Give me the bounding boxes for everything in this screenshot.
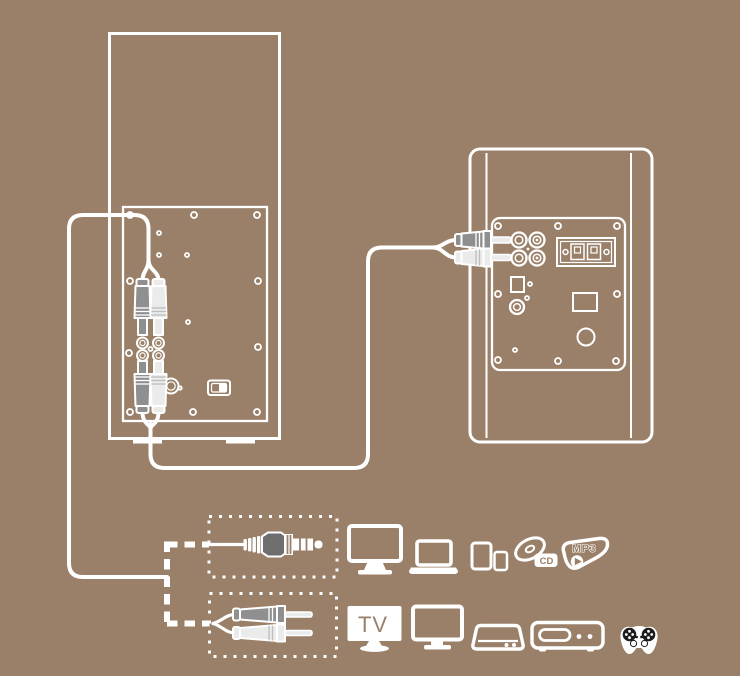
label-plate	[573, 293, 597, 311]
dvd-player-icon	[532, 623, 603, 652]
right-speaker-rca-jacks	[512, 233, 545, 266]
rca-plug-dark	[233, 606, 312, 623]
rca-plug-light	[233, 625, 312, 642]
cd-player-icon: CD	[512, 533, 558, 567]
right-speaker-ports	[510, 277, 597, 346]
mp3-player-icon: MP3	[563, 538, 607, 568]
rca-plug-dark	[455, 231, 511, 249]
aux-adapter-box	[209, 517, 337, 578]
tv-icon: TV	[348, 606, 402, 652]
right-speaker	[470, 149, 652, 442]
game-controller-icon	[620, 626, 657, 654]
mp3-label: MP3	[572, 543, 596, 555]
port-square	[511, 277, 524, 292]
rca-plug-light	[151, 361, 167, 413]
adapter-branch-lines	[167, 542, 210, 624]
tablet-and-phone-icon	[472, 543, 507, 570]
left-speaker-foot	[226, 438, 255, 444]
rca-input-plugs-top	[135, 279, 167, 335]
rca-plug-dark	[135, 279, 151, 335]
desktop-monitor-icon	[349, 526, 401, 575]
speaker-link-cable	[143, 240, 457, 468]
speaker-wire-terminal	[557, 238, 615, 266]
laptop-icon	[409, 541, 458, 574]
round-port	[578, 329, 595, 346]
rca-plug-light	[455, 249, 511, 267]
tv-label: TV	[358, 612, 388, 637]
left-speaker-foot	[133, 438, 162, 444]
rca-link-plugs-right	[455, 231, 511, 267]
rca-adapter-box	[210, 594, 337, 657]
desktop-monitor-icon	[413, 607, 462, 650]
set-top-box-icon	[473, 626, 523, 650]
left-speaker-rca-jacks	[137, 338, 164, 362]
aux-device-row: CD MP3	[349, 526, 608, 575]
aux-plug-icon	[210, 533, 323, 557]
rca-plug-dark	[135, 361, 151, 413]
rca-plug-light	[151, 279, 167, 335]
connection-diagram-canvas: CD MP3 TV	[0, 0, 740, 676]
rca-device-row: TV	[348, 606, 658, 654]
connection-diagram: CD MP3 TV	[0, 0, 740, 676]
rca-plugs-icon	[213, 606, 312, 642]
power-switch	[208, 381, 230, 396]
rca-link-plugs-bottom	[135, 361, 167, 413]
jack-port	[510, 300, 524, 314]
cd-label: CD	[540, 556, 554, 567]
